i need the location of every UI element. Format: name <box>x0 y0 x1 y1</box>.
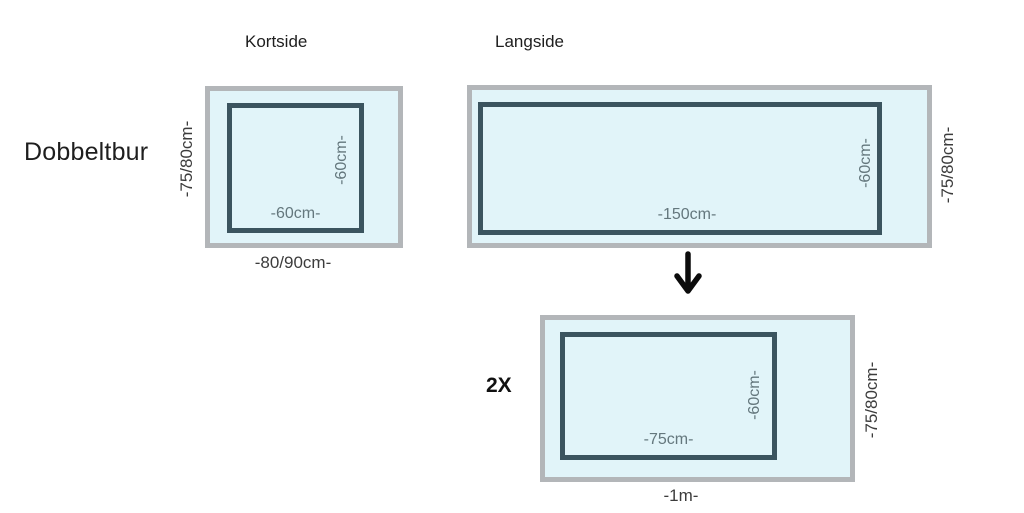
kortside-inner-width-label: -60cm- <box>227 205 364 223</box>
langside-outer-height-label: -75/80cm- <box>938 127 958 204</box>
kortside-inner-height-label: -60cm- <box>333 135 351 185</box>
kortside-outer-width-label: -80/90cm- <box>213 253 373 273</box>
result-outer-height-label: -75/80cm- <box>862 362 882 439</box>
down-arrow-icon <box>672 251 704 302</box>
kortside-outer-height-label: -75/80cm- <box>177 121 197 198</box>
langside-inner-width-label: -150cm- <box>617 206 757 224</box>
result-inner-width-label: -75cm- <box>560 431 777 449</box>
langside-section-title: Langside <box>495 32 564 52</box>
diagram-title: Dobbeltbur <box>24 138 148 167</box>
kortside-section-title: Kortside <box>245 32 307 52</box>
result-multiplier-label: 2X <box>486 374 512 398</box>
dobbeltbur-diagram: Dobbeltbur Kortside -60cm- -60cm- -75/80… <box>0 0 1024 513</box>
result-outer-width-label: -1m- <box>611 486 751 506</box>
result-inner-height-label: -60cm- <box>746 370 764 420</box>
langside-inner-height-label: -60cm- <box>857 138 875 188</box>
